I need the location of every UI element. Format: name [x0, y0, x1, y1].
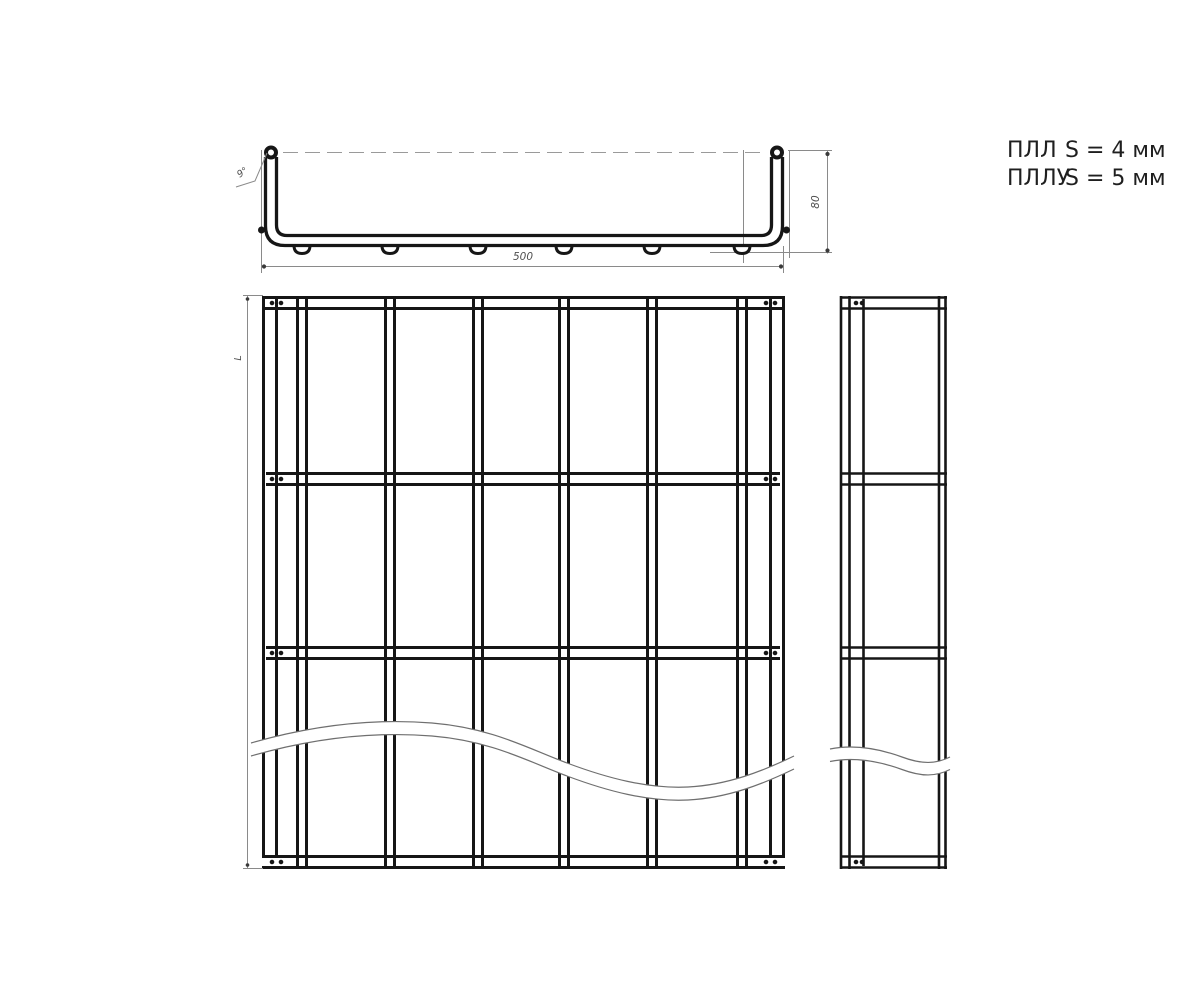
- break-band-fill: [830, 747, 950, 775]
- section-view: 500 80 9°: [235, 148, 832, 274]
- side-view: [830, 296, 950, 869]
- section-corner-callout: 9°: [235, 153, 267, 187]
- dim-end-dot: [825, 152, 829, 156]
- corner-callout-label: 9°: [235, 165, 250, 180]
- section-outer-contour: [266, 157, 783, 246]
- note-1-code: ПЛЛ: [1007, 138, 1057, 163]
- side-vertical-lines: [841, 296, 946, 869]
- note-line-1: ПЛЛ S = 4 мм: [1007, 138, 1166, 163]
- height-dim-label: 80: [810, 195, 822, 209]
- side-break-line: [830, 747, 950, 775]
- dim-end-dot: [262, 264, 266, 268]
- plan-break-line: [251, 722, 794, 801]
- section-extension-lines: [262, 150, 833, 273]
- plan-longitudinal-bars: [298, 299, 747, 866]
- note-line-2: ПЛЛУ S = 5 мм: [1007, 166, 1166, 191]
- side-horizontal-lines: [840, 298, 947, 868]
- material-notes: ПЛЛ S = 4 мм ПЛЛУ S = 5 мм: [1007, 138, 1166, 191]
- plan-rivet-dots: [272, 303, 775, 862]
- section-left-bead: [266, 148, 276, 158]
- section-width-dimension: 500: [262, 251, 784, 269]
- plan-view: L: [233, 296, 794, 869]
- width-dim-label: 500: [513, 251, 533, 263]
- technical-drawing: 500 80 9° L: [0, 0, 1200, 1000]
- side-rivet-dots: [856, 303, 862, 862]
- note-2-code: ПЛЛУ: [1007, 166, 1071, 191]
- dim-end-dot: [825, 248, 829, 252]
- plan-rungs: [262, 298, 785, 868]
- note-2-thickness: S = 5 мм: [1065, 166, 1166, 191]
- plan-length-dimension: L: [233, 296, 263, 869]
- dim-end-dot: [779, 264, 783, 268]
- dim-end-dot: [246, 297, 250, 301]
- plan-side-rails: [264, 298, 784, 858]
- length-dim-label: L: [233, 355, 244, 360]
- section-inner-contour: [277, 157, 772, 236]
- dim-end-dot: [246, 863, 250, 867]
- section-height-dimension: 80: [810, 151, 830, 254]
- note-1-thickness: S = 4 мм: [1065, 138, 1166, 163]
- length-dim-line: [243, 296, 263, 869]
- drawing-sheet: 500 80 9° L: [0, 0, 1200, 1000]
- break-band-fill: [251, 722, 794, 801]
- section-right-bead: [772, 148, 782, 158]
